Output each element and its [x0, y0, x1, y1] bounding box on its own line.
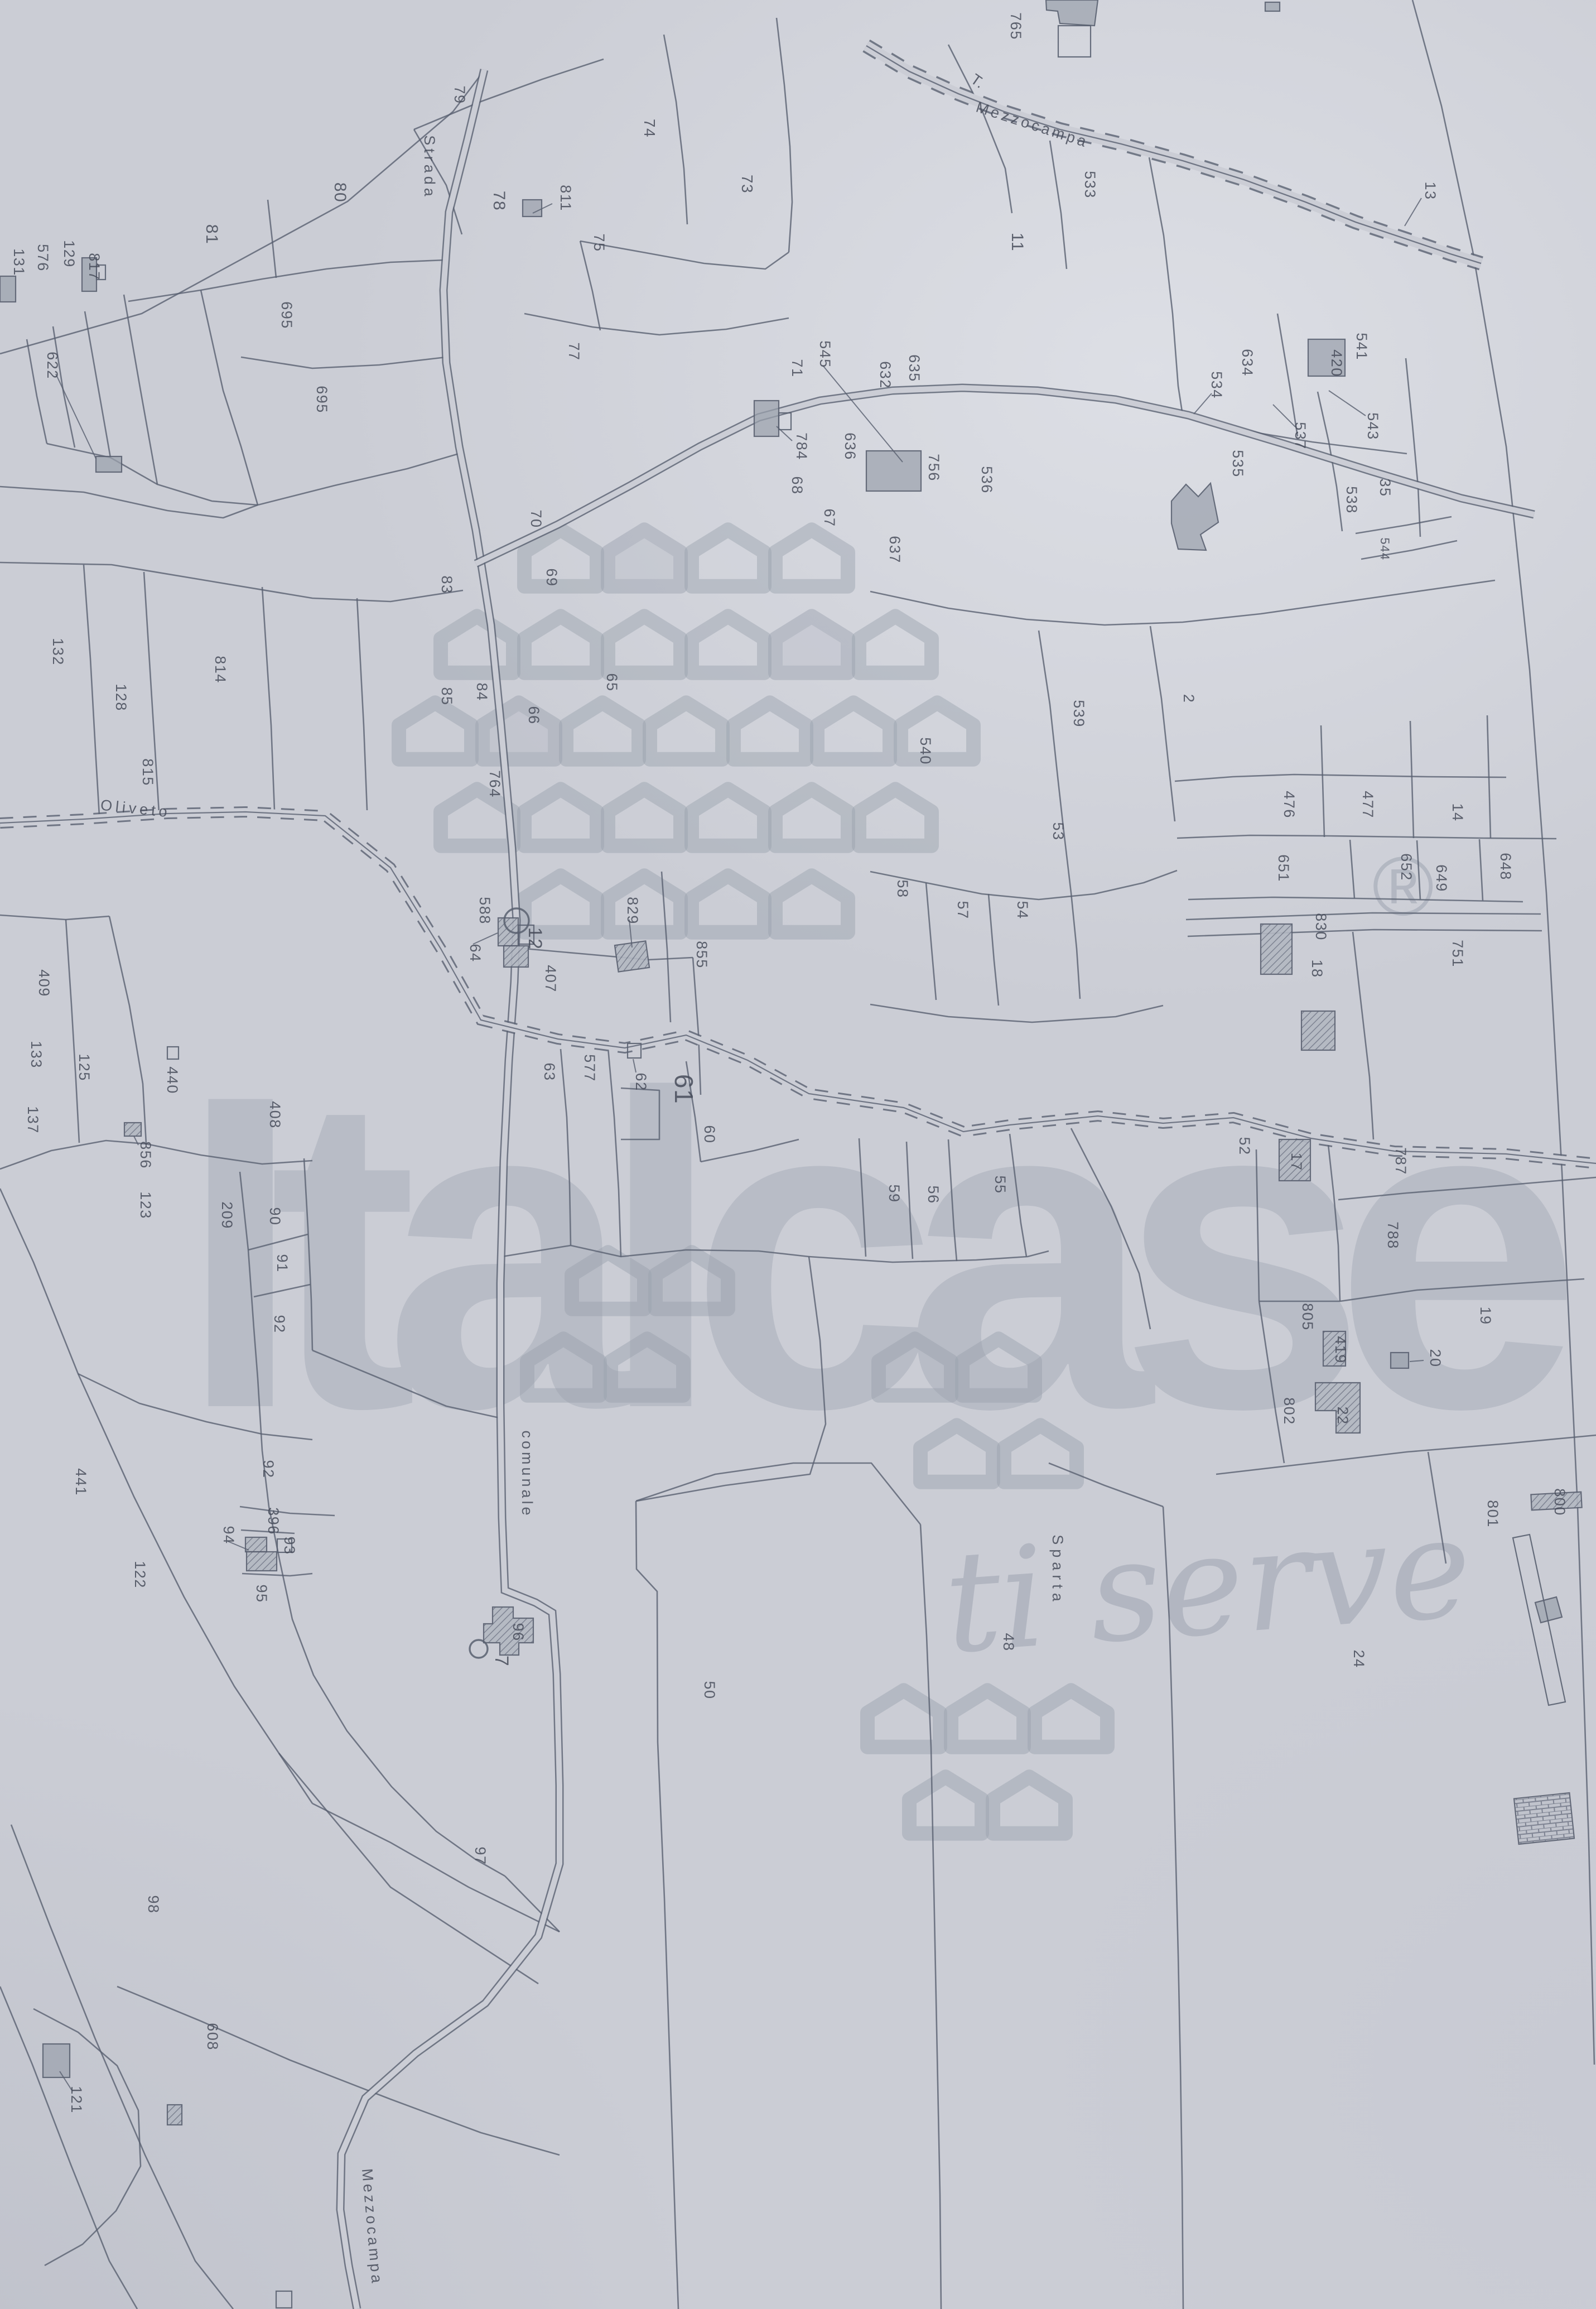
map-label-50: 50: [701, 1681, 718, 1699]
parcel-boundary: [1406, 358, 1420, 537]
map-label-408: 408: [267, 1101, 283, 1129]
map-label-92: 92: [260, 1460, 277, 1478]
building: [1535, 1597, 1562, 1623]
map-label-7: 7: [491, 1656, 512, 1667]
map-label-811: 811: [557, 185, 574, 211]
map-label-538: 538: [1343, 486, 1360, 514]
watermark-tagline: ti serve: [939, 1486, 1477, 1685]
map-label-649: 649: [1433, 864, 1450, 892]
map-label-588: 588: [476, 897, 493, 925]
parcel-boundary: [1149, 157, 1183, 415]
house-icon: [483, 703, 555, 759]
map-label-800: 800: [1551, 1488, 1568, 1516]
parcel-boundary: [870, 870, 1177, 899]
map-label-805: 805: [1299, 1303, 1316, 1331]
map-label-comunale: comunale: [519, 1430, 536, 1518]
map-label-632: 632: [877, 361, 894, 389]
house-icon: [993, 1777, 1065, 1833]
map-label-75: 75: [591, 233, 607, 252]
map-label-96: 96: [510, 1623, 527, 1641]
building: [124, 1123, 141, 1136]
map-label-60: 60: [701, 1125, 718, 1143]
parcel-boundary: [870, 580, 1495, 625]
map-label-35: 35: [1377, 478, 1394, 497]
parcel-boundary: [1277, 314, 1298, 436]
building: [247, 1552, 277, 1571]
building: [1171, 483, 1218, 550]
map-label-94: 94: [220, 1526, 237, 1544]
building: [167, 1047, 179, 1059]
map-label-77: 77: [566, 342, 582, 360]
map-label-756: 756: [925, 454, 942, 482]
map-label-830: 830: [1313, 913, 1329, 941]
parcel-boundary: [0, 1986, 137, 2309]
map-label-536: 536: [978, 466, 995, 494]
map-label-576: 576: [35, 244, 51, 272]
parcel-boundary: [0, 70, 484, 354]
map-label-84: 84: [474, 682, 490, 701]
map-label-784: 784: [793, 432, 810, 460]
map-label-648: 648: [1497, 853, 1514, 881]
parcel-boundary: [777, 18, 792, 252]
map-label-441: 441: [73, 1468, 89, 1496]
map-label-815: 815: [139, 758, 156, 786]
map-label-125: 125: [76, 1054, 93, 1081]
parcel-boundary: [580, 241, 789, 269]
house-icon: [692, 530, 764, 586]
survey-point-circle: [470, 1640, 488, 1658]
map-label-545: 545: [817, 340, 833, 368]
map-label-Mezzocampa: Mezzocampa: [359, 2168, 385, 2286]
map-canvas: Italcase®ti serve 1315761298178180Strada…: [0, 0, 1596, 2309]
map-label-608: 608: [204, 2023, 221, 2051]
map-label-12: 12: [524, 927, 546, 950]
label-leader-line: [1405, 198, 1421, 226]
house-icon: [608, 616, 681, 672]
map-label-539: 539: [1071, 700, 1087, 728]
map-label-68: 68: [789, 476, 806, 494]
building: [1046, 0, 1098, 26]
house-icon: [1035, 1690, 1107, 1747]
parcel-boundary: [66, 920, 79, 1143]
map-label-91: 91: [274, 1254, 291, 1272]
map-label-Mezzocampa: Mezzocampa: [974, 99, 1091, 151]
parcel-boundary: [124, 295, 157, 484]
map-label-537: 537: [1292, 422, 1309, 450]
label-leader-line: [473, 933, 498, 944]
map-label-78: 78: [490, 191, 508, 211]
map-label-73: 73: [739, 175, 756, 194]
map-label-48: 48: [1000, 1633, 1017, 1651]
map-label-52: 52: [1236, 1137, 1253, 1155]
parcel-boundary: [1188, 897, 1523, 902]
building: [1058, 26, 1091, 57]
building: [1265, 2, 1280, 11]
parcel-boundary: [524, 314, 789, 335]
map-label-817: 817: [86, 253, 103, 281]
parcel-boundary: [0, 915, 109, 920]
building: [0, 276, 16, 302]
map-label-651: 651: [1275, 854, 1292, 882]
parcel-boundary: [27, 339, 47, 444]
map-label-577: 577: [581, 1054, 598, 1082]
house-icon: [692, 789, 764, 845]
map-label-67: 67: [821, 508, 838, 527]
house-icon: [524, 876, 597, 932]
map-label-129: 129: [61, 240, 78, 268]
parcel-boundary: [242, 1574, 312, 1576]
building: [523, 200, 542, 217]
map-label-440: 440: [164, 1066, 181, 1094]
map-label-695: 695: [278, 301, 295, 329]
building: [1261, 924, 1292, 974]
map-label-54: 54: [1014, 901, 1031, 919]
house-icon: [901, 703, 973, 759]
parcel-boundary: [262, 587, 274, 810]
map-label-71: 71: [789, 359, 806, 377]
map-label-92: 92: [271, 1315, 288, 1333]
building: [1301, 1011, 1335, 1050]
map-label-55: 55: [992, 1175, 1009, 1194]
parcel-boundary: [926, 883, 936, 1000]
map-label-396: 396: [265, 1507, 282, 1535]
map-label-13: 13: [1422, 181, 1439, 200]
cadastral-map-scan: Italcase®ti serve 1315761298178180Strada…: [0, 0, 1596, 2309]
map-label-81: 81: [202, 224, 221, 244]
torrente-mezzocampa-bed: [866, 46, 1481, 263]
map-label-541: 541: [1353, 333, 1370, 360]
house-icon: [524, 616, 597, 672]
map-label-97: 97: [472, 1846, 489, 1865]
house-icon: [859, 789, 932, 845]
map-label-751: 751: [1449, 940, 1466, 968]
parcel-boundary: [84, 565, 99, 816]
house-icon: [608, 789, 681, 845]
watermark-brand: Italcase: [179, 1002, 1571, 1501]
parcel-boundary: [1410, 721, 1414, 838]
map-label-407: 407: [542, 965, 559, 993]
map-label-409: 409: [36, 969, 52, 997]
map-label-123: 123: [137, 1191, 154, 1219]
building: [498, 918, 518, 946]
map-label-79: 79: [451, 85, 468, 104]
map-label-540: 540: [917, 737, 934, 765]
map-label-59: 59: [886, 1184, 903, 1202]
parcel-boundary: [109, 916, 146, 1144]
parcel-boundary: [1150, 626, 1175, 821]
label-leader-line: [56, 374, 96, 459]
map-label-69: 69: [543, 568, 560, 586]
parcel-boundary: [1063, 827, 1080, 999]
map-label-652: 652: [1398, 853, 1415, 881]
parcel-boundary: [0, 562, 463, 602]
map-label-137: 137: [25, 1106, 41, 1134]
map-label-63: 63: [541, 1062, 558, 1081]
map-label-85: 85: [438, 687, 455, 705]
map-label-855: 855: [693, 941, 710, 969]
parcel-boundary: [85, 311, 110, 458]
map-label-58: 58: [894, 879, 911, 898]
parcel-boundary: [53, 326, 75, 448]
parcel-boundary: [357, 598, 367, 810]
map-label-695: 695: [314, 386, 330, 413]
house-icon: [608, 530, 681, 586]
map-label-764: 764: [486, 770, 503, 798]
map-label-93: 93: [281, 1536, 298, 1555]
parcel-boundary: [580, 241, 600, 330]
building: [866, 451, 921, 491]
house-icon: [775, 876, 848, 932]
map-label-11: 11: [1008, 233, 1026, 252]
map-label-Strada: Strada: [421, 135, 438, 200]
parcel-boundary: [989, 894, 999, 1006]
map-label-53: 53: [1050, 822, 1067, 840]
map-label-477: 477: [1359, 791, 1376, 819]
map-label-70: 70: [528, 509, 544, 528]
map-label-622: 622: [44, 352, 61, 379]
map-label-533: 533: [1082, 171, 1098, 199]
label-leader-line: [1329, 391, 1366, 416]
parcel-boundary: [1175, 775, 1506, 781]
map-label-90: 90: [267, 1207, 283, 1225]
map-label-133: 133: [28, 1041, 45, 1069]
parcel-boundary: [1177, 835, 1556, 839]
map-label-535: 535: [1229, 450, 1246, 478]
map-label-2: 2: [1180, 694, 1197, 704]
parcel-boundary: [1356, 517, 1452, 533]
map-label-74: 74: [641, 119, 658, 138]
map-label-Sparta: Sparta: [1049, 1534, 1066, 1606]
building: [1514, 1793, 1574, 1844]
building: [1513, 1534, 1565, 1705]
house-icon: [775, 789, 848, 845]
map-label-128: 128: [113, 684, 129, 711]
map-label-476: 476: [1281, 791, 1298, 819]
map-label-636: 636: [842, 432, 859, 460]
parcel-boundary: [1050, 141, 1067, 269]
map-label-20: 20: [1427, 1349, 1444, 1367]
parcel-boundary: [636, 1501, 678, 2309]
house-icon: [859, 616, 932, 672]
parcel-boundary: [1361, 541, 1457, 559]
map-label-80: 80: [331, 182, 349, 203]
map-label-420: 420: [1328, 349, 1345, 377]
building: [276, 2291, 292, 2308]
parcel-boundary: [1039, 631, 1063, 827]
map-label-802: 802: [1281, 1397, 1298, 1425]
house-icon: [524, 789, 597, 845]
map-label-787: 787: [1392, 1147, 1409, 1175]
building: [43, 2044, 70, 2077]
house-icon: [775, 530, 848, 586]
map-label-65: 65: [604, 673, 620, 691]
map-label-765: 765: [1007, 12, 1024, 40]
building: [754, 401, 779, 436]
map-label-62: 62: [633, 1072, 649, 1091]
map-label-64: 64: [467, 944, 484, 962]
parcel-boundary: [414, 59, 604, 129]
map-label-19: 19: [1477, 1306, 1494, 1325]
map-label-634: 634: [1239, 349, 1256, 377]
map-label-17: 17: [1288, 1152, 1305, 1171]
map-label-635: 635: [906, 354, 923, 382]
house-icon: [650, 703, 722, 759]
parcel-boundary: [268, 200, 276, 278]
map-label-856: 856: [137, 1141, 154, 1169]
house-icon: [566, 703, 639, 759]
house-icon: [909, 1777, 982, 1833]
map-label-61: 61: [669, 1074, 698, 1104]
parcel-boundary: [117, 1986, 560, 2155]
map-label-131: 131: [11, 248, 27, 276]
parcel-boundary: [948, 45, 1012, 213]
parcel-boundary: [240, 1507, 335, 1516]
parcel-boundary: [258, 453, 461, 505]
map-label-95: 95: [253, 1584, 270, 1603]
house-icon: [775, 616, 848, 672]
parcel-boundary: [1321, 725, 1324, 837]
parcel-boundary: [0, 1141, 146, 1169]
building: [96, 456, 122, 472]
watermark-layer: Italcase®ti serve: [179, 530, 1571, 1833]
building: [167, 2105, 182, 2125]
map-label-14: 14: [1449, 803, 1466, 821]
map-label-122: 122: [132, 1561, 148, 1589]
parcel-boundary: [279, 1753, 538, 1984]
house-icon: [441, 616, 513, 672]
house-icon: [399, 703, 471, 759]
map-label-209: 209: [219, 1201, 235, 1229]
building: [1391, 1353, 1409, 1368]
house-icon: [608, 876, 681, 932]
map-label-829: 829: [624, 897, 641, 925]
map-label-57: 57: [954, 901, 971, 919]
map-label-814: 814: [212, 656, 229, 684]
house-icon: [692, 616, 764, 672]
house-icon: [817, 703, 890, 759]
parcel-boundary: [1188, 930, 1542, 936]
map-label-534: 534: [1208, 371, 1225, 399]
parcel-boundary: [201, 290, 258, 505]
parcel-boundary: [1350, 840, 1354, 898]
map-label-121: 121: [68, 2086, 85, 2114]
map-label-801: 801: [1484, 1500, 1501, 1528]
parcel-boundary: [1479, 839, 1483, 901]
label-leader-line: [1273, 405, 1295, 427]
parcel-boundary: [1186, 913, 1541, 920]
parcel-boundary: [312, 1803, 560, 1932]
map-label-419: 419: [1332, 1336, 1349, 1364]
map-label-132: 132: [50, 638, 66, 666]
map-label-66: 66: [525, 706, 542, 724]
map-label-83: 83: [438, 575, 455, 594]
map-label-637: 637: [886, 536, 903, 564]
map-label-543: 543: [1364, 412, 1381, 440]
parcel-boundary: [920, 1524, 941, 2309]
house-icon: [692, 876, 764, 932]
map-label-22: 22: [1334, 1406, 1351, 1425]
map-label-544: 544: [1378, 537, 1392, 560]
house-icon: [734, 703, 806, 759]
map-label-98: 98: [145, 1895, 162, 1913]
map-label-56: 56: [925, 1185, 942, 1204]
parcel-boundary: [241, 357, 446, 368]
map-label-24: 24: [1351, 1649, 1367, 1668]
house-icon: [951, 1690, 1024, 1747]
parcel-boundary: [664, 35, 687, 224]
map-label-788: 788: [1385, 1221, 1401, 1249]
map-label-18: 18: [1309, 959, 1325, 978]
